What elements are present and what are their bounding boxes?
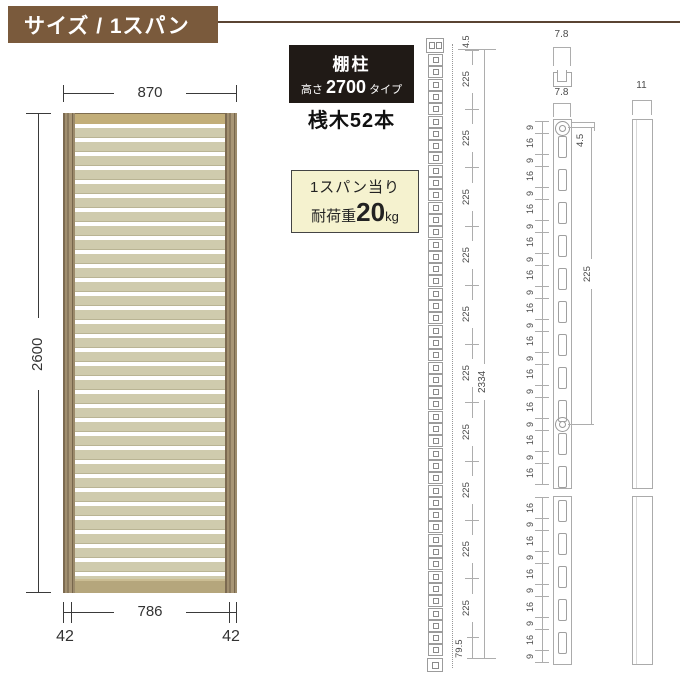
- dim-bracket: [553, 103, 571, 104]
- dim-tick: [63, 85, 64, 102]
- strip-slot: [428, 374, 443, 386]
- strip-slot: [428, 177, 443, 189]
- strip-slot-hole: [433, 463, 439, 469]
- strip-slot-hole: [433, 340, 439, 346]
- column-slot: [558, 268, 567, 290]
- strip-slot: [428, 116, 443, 128]
- strip-slot: [428, 644, 443, 656]
- dim-tick: [535, 385, 549, 386]
- side-column-fold-line: [636, 120, 637, 488]
- column-slot: [558, 599, 567, 621]
- strip-slot-hole: [433, 537, 439, 543]
- dim-tick: [535, 319, 549, 320]
- section-title: サイズ / 1スパン: [8, 10, 190, 40]
- column-slot: [558, 632, 567, 654]
- dim-tick: [535, 662, 549, 663]
- load-prefix: 耐荷重: [311, 205, 356, 226]
- strip-slot: [428, 595, 443, 607]
- strip-slot: [428, 362, 443, 374]
- strip-slot-hole: [433, 414, 439, 420]
- strip-slot: [428, 239, 443, 251]
- dim-tick: [553, 103, 554, 117]
- strip-slot-hole: [433, 69, 439, 75]
- column-slot: [558, 566, 567, 588]
- dim-label-segment: 16: [525, 566, 537, 582]
- dim-tick: [465, 520, 479, 521]
- strip-slot-hole: [433, 315, 439, 321]
- strip-slot-hole: [433, 377, 439, 383]
- strip-slot: [428, 202, 443, 214]
- strip-slot: [428, 214, 443, 226]
- strip-slot: [428, 312, 443, 324]
- strip-slot-hole: [433, 611, 439, 617]
- dim-label-bottom-offset: 79.5: [454, 637, 467, 661]
- strip-slot-hole: [433, 254, 439, 260]
- dim-tick: [535, 629, 549, 630]
- strip-slot-hole: [433, 192, 439, 198]
- strip-slot-hole: [433, 291, 439, 297]
- column-hole-center: [559, 125, 566, 132]
- strip-slot-hole: [433, 451, 439, 457]
- strip-slot-hole: [433, 512, 439, 518]
- dim-tick: [535, 187, 549, 188]
- strip-slot-hole: [433, 94, 439, 100]
- strip-slot-hole: [433, 168, 439, 174]
- strip-slot-hole: [429, 42, 435, 49]
- total-dim-line: [484, 49, 485, 658]
- strip-slot-hole: [433, 561, 439, 567]
- dim-label-pitch: 225: [461, 124, 474, 152]
- dim-label-pitch: 225: [461, 241, 474, 269]
- strip-slot: [428, 337, 443, 349]
- dim-tick: [568, 424, 594, 425]
- strip-slot: [428, 472, 443, 484]
- load-capacity-box: 1スパン当り 耐荷重20kg: [291, 170, 419, 233]
- strip-slot-hole: [433, 229, 439, 235]
- column-slot: [558, 433, 567, 455]
- strip-slot: [428, 140, 443, 152]
- strip-slot-hole: [433, 524, 439, 530]
- strip-slot-hole: [433, 549, 439, 555]
- dim-tick: [535, 650, 549, 651]
- dim-label-pitch: 225: [461, 359, 474, 387]
- dim-label-segment: 16: [525, 168, 537, 184]
- strip-slot-hole: [433, 586, 439, 592]
- strip-end-slot: [426, 38, 444, 53]
- strip-slot-hole: [433, 106, 439, 112]
- dim-label-front-width: 7.8: [546, 87, 577, 98]
- column-slot: [558, 466, 567, 488]
- strip-slot: [428, 583, 443, 595]
- spec-height-value: 2700: [326, 77, 366, 97]
- dim-label-segment: 16: [525, 366, 537, 382]
- channel-cavity: [557, 70, 567, 82]
- spec-height-prefix: 高さ: [301, 84, 323, 96]
- dim-tick: [71, 602, 72, 623]
- dim-label-786: 786: [114, 603, 186, 621]
- strip-slot: [428, 460, 443, 472]
- panel-rail-top: [75, 113, 225, 124]
- dim-tick: [535, 484, 549, 485]
- dim-tick: [570, 103, 571, 117]
- dim-label-pitch: 225: [461, 535, 474, 563]
- dim-tick: [465, 461, 479, 462]
- section-header: サイズ / 1スパン: [8, 6, 218, 43]
- strip-slot: [428, 521, 443, 533]
- panel-post-left: [63, 113, 75, 593]
- dim-tick: [570, 47, 571, 66]
- column-slot: [558, 235, 567, 257]
- strip-slot: [428, 288, 443, 300]
- strip-slot-hole: [433, 217, 439, 223]
- strip-slot: [428, 103, 443, 115]
- dim-label-segment: 16: [525, 399, 537, 415]
- strip-slot: [428, 226, 443, 238]
- dim-tick: [535, 584, 549, 585]
- column-slot: [558, 169, 567, 191]
- dim-label-segment: 16: [525, 234, 537, 250]
- dim-tick: [535, 166, 549, 167]
- strip-slot: [428, 91, 443, 103]
- dim-tick: [535, 551, 549, 552]
- dim-tick: [535, 418, 549, 419]
- strip-slot-hole: [433, 426, 439, 432]
- strip-slot: [428, 152, 443, 164]
- dim-tick: [535, 220, 549, 221]
- column-slot: [558, 301, 567, 323]
- dim-tick: [465, 50, 479, 51]
- strip-slot-hole: [433, 574, 439, 580]
- load-line1: 1スパン当り: [310, 176, 400, 197]
- strip-slot: [428, 275, 443, 287]
- strip-slot: [428, 497, 443, 509]
- strip-slot-hole: [433, 242, 439, 248]
- strip-slot-hole: [433, 155, 439, 161]
- dim-tick: [632, 100, 633, 115]
- spec-height-suffix: タイプ: [369, 84, 402, 96]
- dim-tick: [535, 397, 549, 398]
- dim-tick: [535, 463, 549, 464]
- page: サイズ / 1スパン 870 2600 786 42 42 棚柱 高さ 2700…: [0, 0, 680, 680]
- dim-label-segment: 16: [525, 432, 537, 448]
- strip-slot: [428, 251, 443, 263]
- strip-slot: [428, 79, 443, 91]
- load-unit: kg: [385, 209, 399, 224]
- dim-tick: [465, 637, 479, 638]
- strip-slot: [428, 632, 443, 644]
- strip-slot-hole: [433, 475, 439, 481]
- dim-label-42-left: 42: [48, 628, 82, 646]
- column-slot: [558, 136, 567, 158]
- column-slot: [558, 500, 567, 522]
- strip-slot: [428, 300, 443, 312]
- dim-label-pitch: 225: [461, 65, 474, 93]
- dim-tick: [465, 167, 479, 168]
- column-slot: [558, 533, 567, 555]
- dim-bracket: [632, 100, 652, 101]
- strip-slot-hole: [433, 438, 439, 444]
- strip-slot-hole: [433, 303, 439, 309]
- dim-label-segment: 16: [525, 201, 537, 217]
- dim-tick: [535, 596, 549, 597]
- strip-slot: [428, 423, 443, 435]
- strip-slot-hole: [433, 205, 439, 211]
- strip-slot: [428, 485, 443, 497]
- strip-slot: [428, 546, 443, 558]
- strip-slot-hole: [433, 635, 439, 641]
- dim-tick: [236, 602, 237, 623]
- dim-label-pitch: 225: [461, 418, 474, 446]
- strip-slot-hole: [433, 401, 439, 407]
- dim-tick: [535, 518, 549, 519]
- dim-tick: [465, 226, 479, 227]
- load-line2: 耐荷重20kg: [311, 197, 399, 228]
- strip-slot-hole: [433, 488, 439, 494]
- strip-slot: [428, 128, 443, 140]
- dim-bracket: [572, 122, 595, 123]
- dim-tick: [535, 286, 549, 287]
- dim-label-segment: 16: [525, 500, 537, 516]
- crosspiece-count: 桟木52本: [289, 104, 414, 133]
- strip-slot-hole: [433, 328, 439, 334]
- header-rule: [218, 21, 680, 23]
- strip-slot: [428, 534, 443, 546]
- column-slot: [558, 202, 567, 224]
- dim-label-segment: 16: [525, 599, 537, 615]
- dim-label-segment: 16: [525, 135, 537, 151]
- strip-slot: [428, 189, 443, 201]
- column-slot: [558, 334, 567, 356]
- strip-slot-hole: [433, 365, 439, 371]
- strip-slot: [428, 66, 443, 78]
- lattice-panel: [63, 113, 237, 593]
- spec-box: 棚柱 高さ 2700 タイプ: [289, 45, 414, 103]
- dim-tick: [535, 133, 549, 134]
- strip-slot-hole: [433, 389, 439, 395]
- spec-name: 棚柱: [333, 50, 371, 75]
- strip-slot-hole: [433, 180, 439, 186]
- strip-slot: [428, 386, 443, 398]
- strip-slot: [428, 165, 443, 177]
- dim-tick: [465, 402, 479, 403]
- dim-tick: [535, 530, 549, 531]
- strip-slot-hole: [433, 119, 439, 125]
- strip-slot-hole: [433, 647, 439, 653]
- dim-label-side-width: 11: [626, 80, 657, 91]
- dim-tick: [535, 364, 549, 365]
- dim-tick: [535, 331, 549, 332]
- dim-tick: [236, 85, 237, 102]
- strip-slot: [428, 571, 443, 583]
- strip-slot-hole: [433, 266, 439, 272]
- dim-tick: [26, 113, 51, 114]
- strip-slot: [428, 620, 443, 632]
- dim-label-top-offset: 4.5: [461, 31, 474, 52]
- side-column-lower: [632, 496, 653, 665]
- dim-label-segment: 16: [525, 465, 537, 481]
- strip-slot-hole: [432, 662, 439, 669]
- dim-tick: [594, 122, 595, 131]
- strip-slot: [428, 509, 443, 521]
- strip-slot: [428, 54, 443, 66]
- dim-tick: [535, 563, 549, 564]
- dim-label-pitch: 225: [461, 594, 474, 622]
- strip-slot-hole: [436, 42, 442, 49]
- strip-slot: [428, 349, 443, 361]
- strip-slot: [428, 558, 443, 570]
- dim-tick: [535, 352, 549, 353]
- dim-tick: [553, 47, 554, 66]
- dim-tick: [535, 497, 549, 498]
- dim-tick: [465, 344, 479, 345]
- strip-slot-hole: [433, 352, 439, 358]
- dim-tick: [535, 121, 549, 122]
- dim-tick: [535, 617, 549, 618]
- panel-rail-bottom: [75, 579, 225, 593]
- dim-tick: [651, 100, 652, 115]
- dim-tick: [535, 430, 549, 431]
- strip-slot-hole: [433, 623, 439, 629]
- dim-label-870: 870: [114, 84, 186, 102]
- dim-label-section-width: 7.8: [546, 29, 577, 40]
- strip-slot: [428, 325, 443, 337]
- dim-label-segment: 16: [525, 300, 537, 316]
- dim-label-pitch: 225: [461, 300, 474, 328]
- dim-tick: [465, 578, 479, 579]
- segment-dim-line: [542, 497, 543, 662]
- dim-label-segment: 16: [525, 333, 537, 349]
- dim-label-hole-pitch: 225: [582, 259, 594, 289]
- strip-slot-hole: [433, 143, 439, 149]
- dim-tick: [465, 285, 479, 286]
- strip-slot: [428, 435, 443, 447]
- strip-hole-row: [452, 44, 453, 668]
- dim-bracket: [553, 47, 571, 48]
- strip-slot: [428, 263, 443, 275]
- strip-slot-hole: [433, 82, 439, 88]
- strip-slot: [428, 608, 443, 620]
- strip-end-slot: [427, 658, 443, 672]
- column-slot: [558, 400, 567, 422]
- strip-slot-hole: [433, 131, 439, 137]
- dim-tick: [229, 602, 230, 623]
- column-hole-center: [559, 421, 566, 428]
- strip-slot: [428, 411, 443, 423]
- dim-tick: [535, 253, 549, 254]
- dim-label-pitch: 225: [461, 476, 474, 504]
- strip-slot-hole: [433, 57, 439, 63]
- column-slot: [558, 367, 567, 389]
- dim-label-total: 2334: [477, 364, 491, 400]
- dim-label-segment: 16: [525, 533, 537, 549]
- dim-tick: [535, 265, 549, 266]
- dim-label-pitch: 225: [461, 183, 474, 211]
- dim-tick: [535, 199, 549, 200]
- dim-label-segment: 16: [525, 267, 537, 283]
- dim-tick: [535, 232, 549, 233]
- dim-label-segment: 16: [525, 632, 537, 648]
- side-column-fold-line: [636, 497, 637, 664]
- panel-slats: [75, 124, 225, 579]
- strip-slot: [428, 398, 443, 410]
- strip-slot-hole: [433, 598, 439, 604]
- dim-label-top-offset: 4.5: [575, 128, 587, 152]
- dim-tick: [63, 602, 64, 623]
- strip-slot-hole: [433, 278, 439, 284]
- side-column-upper: [632, 119, 653, 489]
- dim-tick: [535, 451, 549, 452]
- dim-tick: [26, 592, 51, 593]
- spec-height: 高さ 2700 タイプ: [301, 77, 402, 98]
- dim-tick: [465, 109, 479, 110]
- strip-slot: [428, 448, 443, 460]
- panel-post-right: [225, 113, 237, 593]
- strip-slot-hole: [433, 500, 439, 506]
- dim-label-2600: 2600: [29, 318, 48, 390]
- dim-label-42-right: 42: [214, 628, 248, 646]
- dim-tick: [535, 154, 549, 155]
- load-value: 20: [356, 197, 385, 228]
- dim-tick: [535, 298, 549, 299]
